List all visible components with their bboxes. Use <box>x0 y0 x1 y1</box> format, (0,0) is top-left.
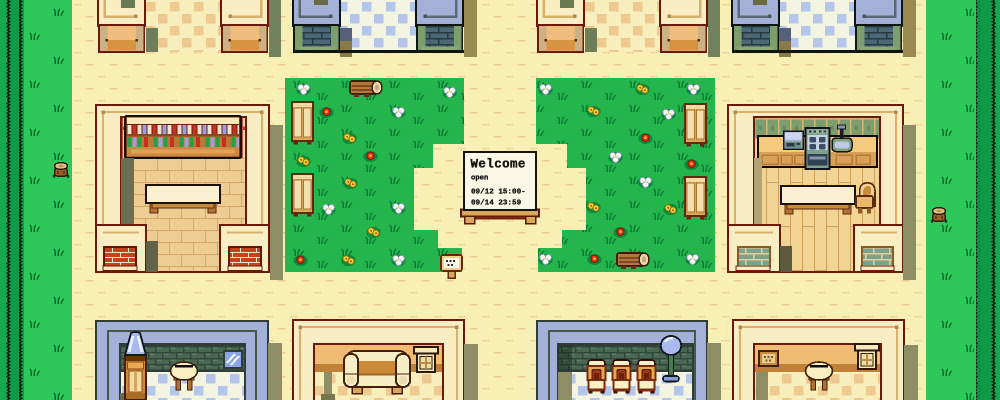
svg-text:Welcome: Welcome <box>471 158 526 172</box>
svg-text:open: open <box>471 175 488 183</box>
svg-text:09/14 23:59: 09/14 23:59 <box>471 200 522 208</box>
svg-text:09/12 15:00-: 09/12 15:00- <box>471 189 526 197</box>
